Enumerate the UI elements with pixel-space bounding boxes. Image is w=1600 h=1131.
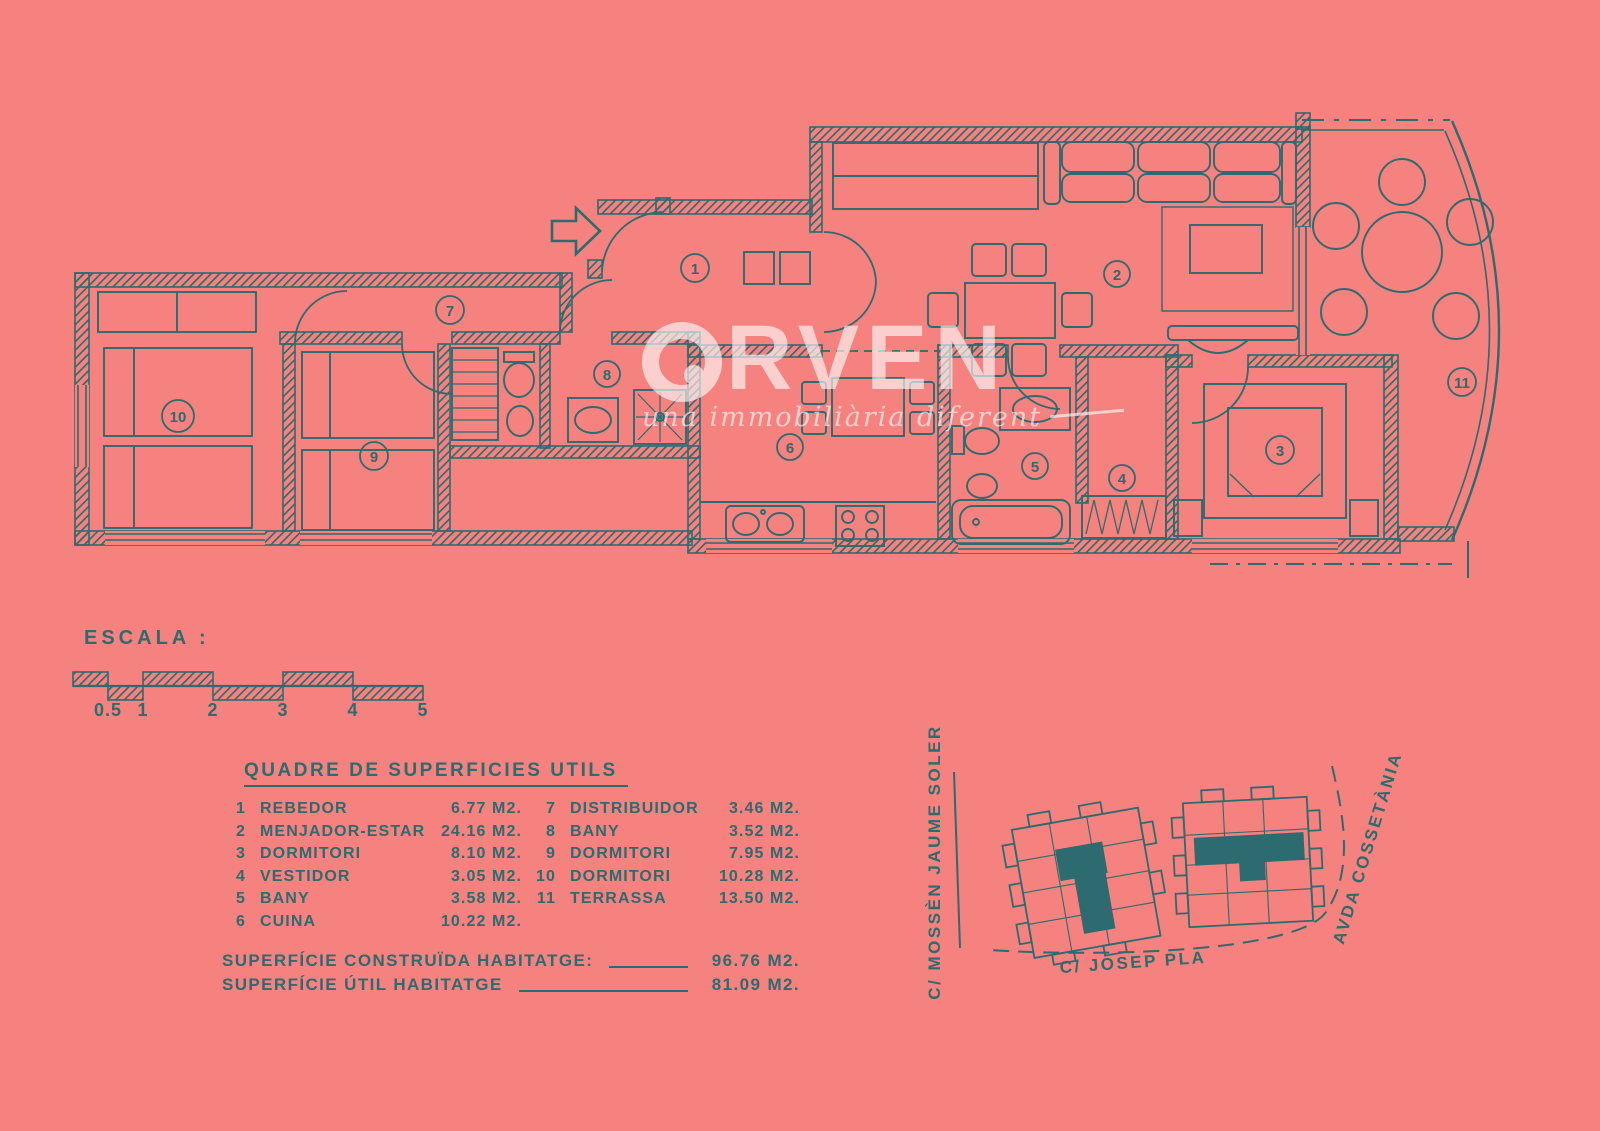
room-number-5: 5 xyxy=(1031,459,1039,476)
terrace-outline xyxy=(1210,120,1499,578)
watermark-logo: RVEN una immobiliària diferent xyxy=(642,316,1124,433)
room-number-10: 10 xyxy=(170,409,187,426)
room-number-7: 7 xyxy=(446,303,454,320)
areas-table-left-column: 1 REBEDOR 6.77 M2. 2 MENJADOR-ESTAR 24.1… xyxy=(222,798,522,933)
areas-table-title: QUADRE DE SUPERFICIES UTILS xyxy=(244,760,628,787)
table-row: 10 DORMITORI 10.28 M2. xyxy=(532,866,800,889)
room-number-11: 11 xyxy=(1454,375,1470,392)
ruled-line xyxy=(519,990,688,992)
scale-tick-05: 0.5 xyxy=(94,700,122,721)
room-number-2: 2 xyxy=(1113,267,1121,284)
areas-table-totals: SUPERFÍCIE CONSTRUÏDA HABITATGE: 96.76 M… xyxy=(222,949,800,997)
room-number-3: 3 xyxy=(1276,443,1284,460)
areas-table-right-column: 7 DISTRIBUIDOR 3.46 M2. 8 BANY 3.52 M2. … xyxy=(532,798,800,933)
tagline-swoosh xyxy=(1050,409,1124,418)
table-row: 11 TERRASSA 13.50 M2. xyxy=(532,888,800,911)
site-building-b xyxy=(1170,784,1325,928)
table-row: 6 CUINA 10.22 M2. xyxy=(222,911,522,934)
scanned-floorplan-document: 1 2 3 4 5 6 7 8 9 10 11 xyxy=(0,0,1600,1131)
table-row: 3 DORMITORI 8.10 M2. xyxy=(222,843,522,866)
scale-tick-1: 1 xyxy=(137,700,148,721)
scale-tick-4: 4 xyxy=(347,700,358,721)
room-number-4: 4 xyxy=(1118,471,1127,488)
room-number-1: 1 xyxy=(691,261,699,278)
scale-bar xyxy=(73,672,423,700)
site-plan xyxy=(954,766,1344,970)
brand-o-icon xyxy=(642,322,722,402)
brand-tagline: una immobiliària diferent xyxy=(642,402,1042,433)
site-building-a xyxy=(998,794,1174,970)
total-built-area: SUPERFÍCIE CONSTRUÏDA HABITATGE: 96.76 M… xyxy=(222,949,800,973)
scale-tick-2: 2 xyxy=(207,700,218,721)
room-number-9: 9 xyxy=(370,449,378,466)
table-row: 9 DORMITORI 7.95 M2. xyxy=(532,843,800,866)
room-number-8: 8 xyxy=(603,367,611,384)
table-row: 8 BANY 3.52 M2. xyxy=(532,821,800,844)
scale-label: ESCALA : xyxy=(84,627,210,650)
ruled-line xyxy=(609,966,688,968)
entrance-arrow-icon xyxy=(552,208,600,254)
scale-tick-5: 5 xyxy=(417,700,428,721)
table-row: 5 BANY 3.58 M2. xyxy=(222,888,522,911)
table-row: 7 DISTRIBUIDOR 3.46 M2. xyxy=(532,798,800,821)
table-row: 4 VESTIDOR 3.05 M2. xyxy=(222,866,522,889)
street-label-mossen-jaume-soler: C/ MOSSÈN JAUME SOLER xyxy=(925,724,945,999)
room-number-6: 6 xyxy=(786,440,794,457)
brand-text: RVEN xyxy=(726,316,1008,400)
scale-tick-3: 3 xyxy=(277,700,288,721)
areas-table: QUADRE DE SUPERFICIES UTILS 1 REBEDOR 6.… xyxy=(222,760,800,997)
table-row: 2 MENJADOR-ESTAR 24.16 M2. xyxy=(222,821,522,844)
total-usable-area: SUPERFÍCIE ÚTIL HABITATGE 81.09 M2. xyxy=(222,973,800,997)
table-row: 1 REBEDOR 6.77 M2. xyxy=(222,798,522,821)
